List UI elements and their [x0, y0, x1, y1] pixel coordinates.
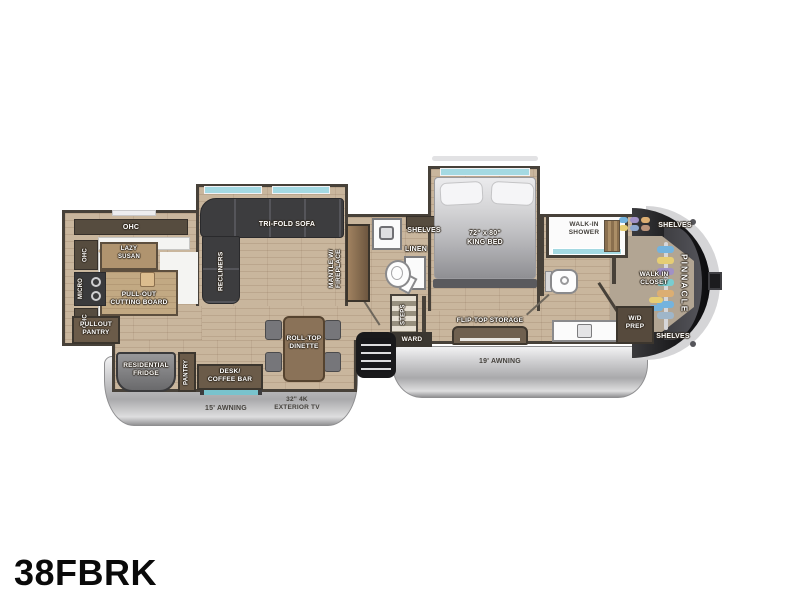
window-glass: [204, 186, 262, 194]
awning-rear-label: 15' AWNING: [180, 404, 272, 413]
fridge-label: RESIDENTIAL FRIDGE: [116, 362, 176, 379]
folded-clothes-icon: [619, 217, 628, 223]
tri-fold-sofa: [200, 198, 344, 238]
shelves-bottom-label: SHELVES: [646, 332, 700, 341]
dinette-chair: [265, 320, 282, 340]
slide-travel-outline: [432, 156, 538, 161]
burner-icon: [91, 277, 101, 287]
floorplan: OHC OHC MICRO OHC LAZY SUSAN PULL-OUT CU…: [0, 0, 800, 600]
ohc-upper-label: OHC: [76, 241, 96, 269]
hitch-pin-icon: [708, 272, 722, 290]
pillow-icon: [490, 181, 534, 206]
cap-light-bottom-icon: [690, 341, 696, 347]
cutting-board-label: PULL-OUT CUTTING BOARD: [96, 291, 182, 308]
dinette-chair: [324, 352, 341, 372]
ward-label: WARD: [392, 336, 432, 344]
window-glass: [440, 168, 530, 176]
pillow-icon: [439, 181, 483, 206]
toilet-mid-seat: [391, 266, 403, 280]
vanity-sink-icon: [577, 324, 592, 338]
fireplace-cabinet: [346, 224, 370, 302]
awning-main-label: 19' AWNING: [452, 357, 548, 366]
exterior-tv-icon: [200, 390, 262, 395]
shelves-top-label: SHELVES: [648, 221, 702, 230]
bed-footboard: [433, 279, 537, 288]
wall-bed-bath: [540, 214, 544, 296]
exterior-tv-label: 32" 4K EXTERIOR TV: [260, 396, 334, 413]
folded-clothes-icon: [649, 297, 663, 303]
recliners-label: RECLINERS: [212, 240, 230, 302]
window-glass: [272, 186, 330, 194]
ohc-top-label: OHC: [74, 223, 188, 232]
awning-skirt-main: [392, 346, 648, 398]
cutting-board-icon: [140, 272, 155, 287]
folded-clothes-icon: [630, 225, 639, 231]
hanging-clothes-icon: [657, 246, 674, 253]
steps-label: STEPS: [396, 298, 412, 332]
pantry-label: PANTRY: [180, 354, 194, 390]
flip-top-label: FLIP-TOP STORAGE: [444, 317, 536, 325]
desk-label: DESK/ COFFEE BAR: [197, 368, 263, 385]
linen-label: LINEN: [398, 245, 434, 254]
sofa-label: TRI-FOLD SOFA: [230, 220, 344, 229]
wd-prep-label: W/D PREP: [616, 315, 654, 332]
brand-badge: PINNACLE: [676, 237, 692, 331]
model-name: 38FBRK: [14, 552, 157, 594]
bath-sink-icon: [379, 226, 394, 240]
dinette-chair: [265, 352, 282, 372]
flip-top-storage-bench: [452, 326, 528, 345]
hanging-clothes-icon: [657, 257, 674, 264]
micro-label: MICRO: [74, 273, 89, 305]
lazy-susan-label: LAZY SUSAN: [100, 246, 158, 262]
hanging-clothes-icon: [657, 290, 674, 297]
pullout-pantry-label: PULLOUT PANTRY: [72, 321, 120, 338]
toilet-rear-seat: [560, 276, 569, 285]
dinette-label: ROLL-TOP DINETTE: [281, 335, 327, 352]
hanging-clothes-icon: [657, 312, 674, 319]
kitchen-window: [112, 210, 156, 216]
bench-trim: [460, 338, 520, 341]
fireplace-label: MANTLE W/ FIREPLACE: [324, 230, 346, 308]
folded-clothes-icon: [619, 225, 628, 231]
king-bed-label: 72" x 80" KING BED: [434, 229, 536, 247]
entry-steps-treads: [361, 338, 391, 372]
shower-label: WALK-IN SHOWER: [552, 221, 616, 238]
walk-in-closet-label: WALK IN CLOSET: [626, 271, 682, 288]
folded-clothes-icon: [630, 217, 639, 223]
